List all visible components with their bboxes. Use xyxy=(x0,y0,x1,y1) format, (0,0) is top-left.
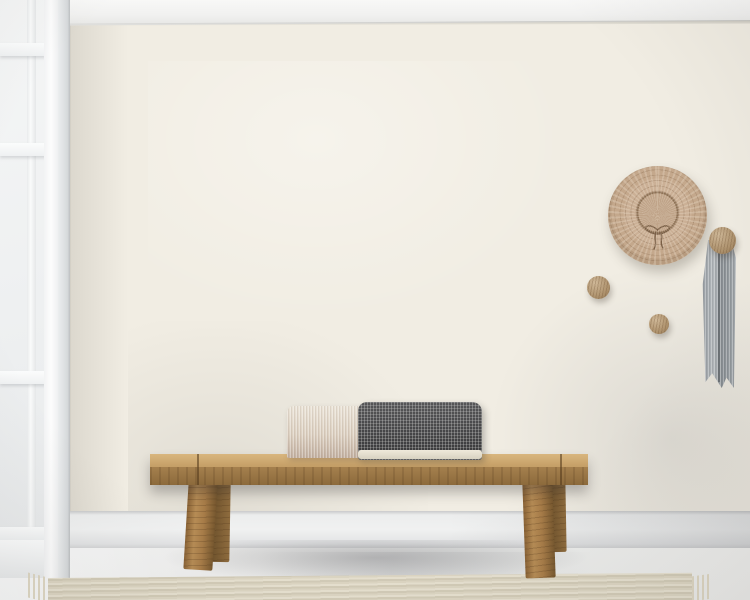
hat-crown xyxy=(638,193,678,233)
window-jamb xyxy=(58,0,70,578)
window-glass xyxy=(0,0,46,560)
wall-knob-small xyxy=(649,314,669,334)
window-rail-1 xyxy=(0,43,46,56)
window-stile xyxy=(44,0,58,578)
window-frame xyxy=(0,0,70,578)
rug-fringe-right xyxy=(692,574,712,600)
ribbon-fold-seam xyxy=(718,242,720,382)
seat-breadboard-joint-right xyxy=(560,454,562,485)
window-rail-2 xyxy=(0,143,46,156)
hat-crown-bow xyxy=(608,166,707,265)
throw-blanket xyxy=(130,405,390,570)
interior-scene xyxy=(0,0,750,600)
wall-knob-with-ribbon xyxy=(709,227,736,254)
straw-hat xyxy=(608,166,707,265)
rug-fringe-left xyxy=(28,573,48,600)
window-muntin-vertical xyxy=(27,0,36,560)
hat-bow-icon xyxy=(646,226,670,249)
wall-knob-left xyxy=(587,276,610,299)
wall-shadow-left xyxy=(68,21,128,514)
window-rail-4 xyxy=(0,527,46,540)
bench-leg-front-right xyxy=(522,482,555,579)
window-rail-3 xyxy=(0,371,46,384)
